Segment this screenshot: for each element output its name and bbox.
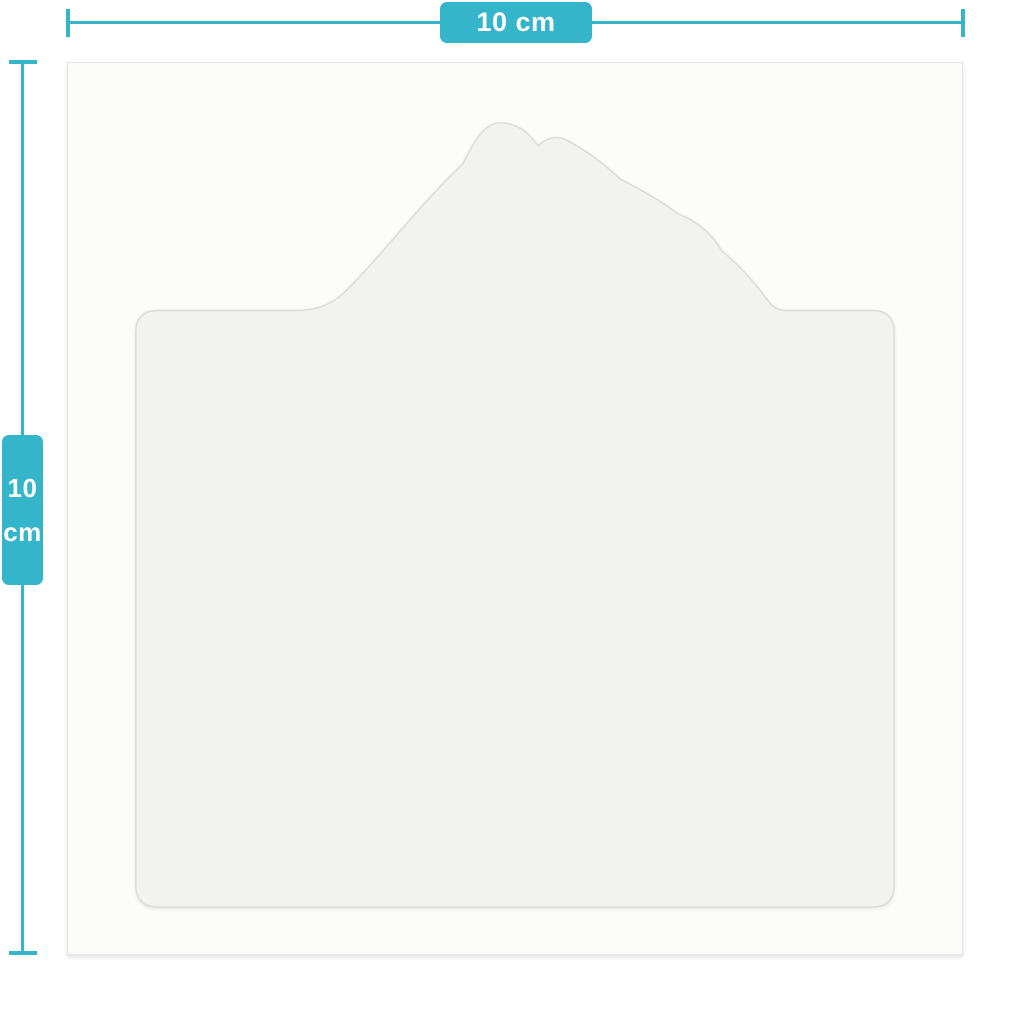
height-dimension-top-tick <box>9 60 37 64</box>
width-dimension-left-tick <box>66 9 70 37</box>
height-dimension-badge: 10 cm <box>2 435 43 585</box>
stencil-blank-shape <box>68 63 962 954</box>
product-canvas <box>67 62 963 955</box>
width-dimension-right-tick <box>961 9 965 37</box>
stencil-outline <box>136 123 894 907</box>
height-dimension-label-line1: 10 <box>8 466 38 510</box>
product-image: 10 cm 10 cm <box>0 0 1024 1024</box>
height-dimension-bottom-tick <box>9 951 37 955</box>
width-dimension-badge: 10 cm <box>440 2 592 43</box>
height-dimension-label-line2: cm <box>3 510 42 554</box>
width-dimension-label: 10 cm <box>476 7 555 38</box>
